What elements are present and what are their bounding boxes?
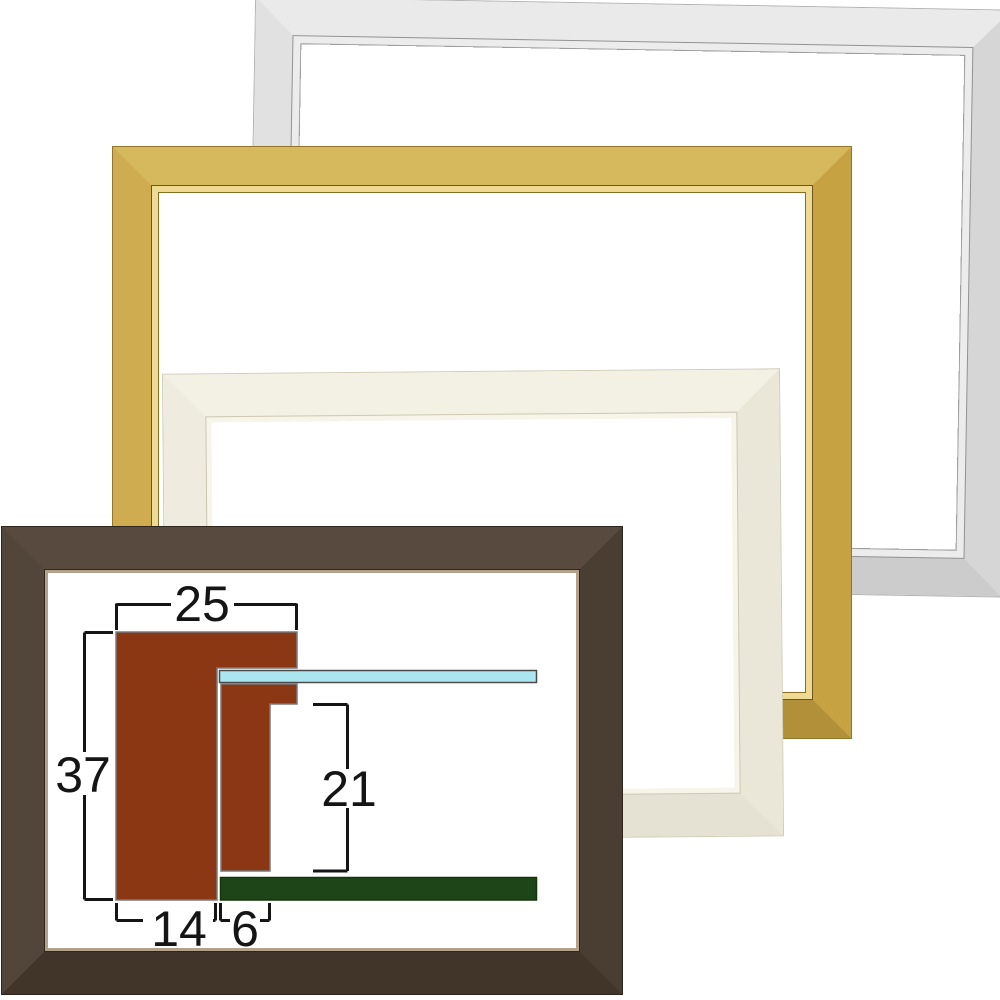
- brown-frame-opening: [48, 573, 576, 948]
- brown-frame: [2, 527, 622, 994]
- frame-product-image: 25 37 21 14 6: [0, 0, 1000, 1000]
